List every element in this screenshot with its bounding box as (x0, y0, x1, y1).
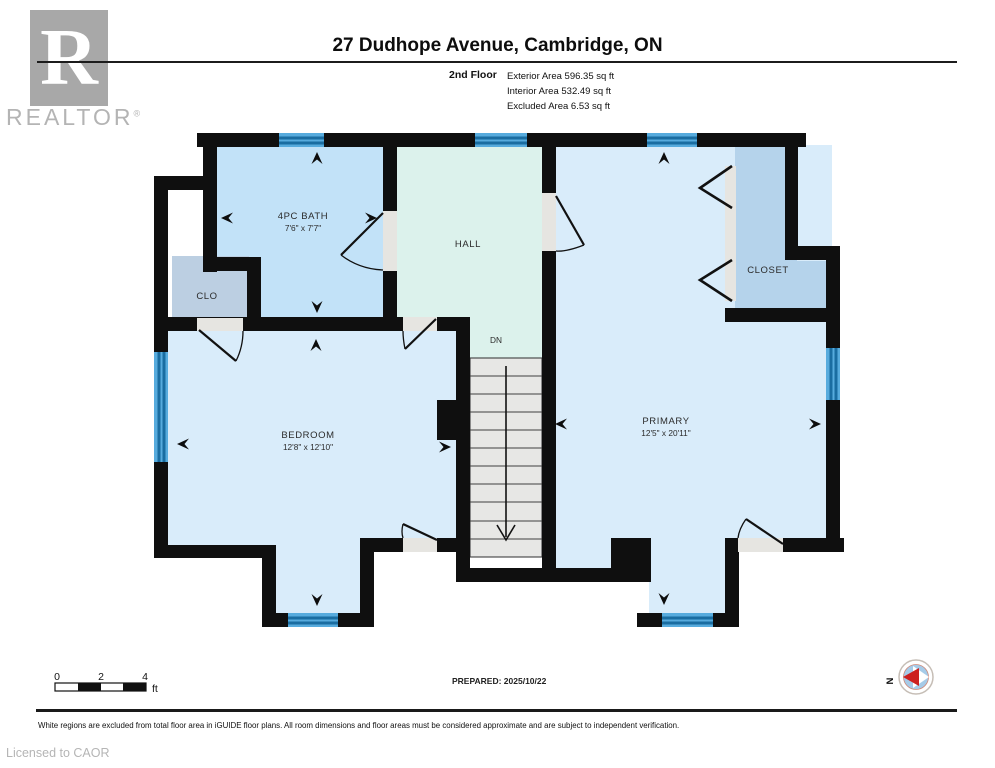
clo-door-opening (197, 318, 243, 331)
stairs-dn-label: DN (490, 335, 502, 345)
scale-tick-4: 4 (142, 671, 148, 683)
primary-label: PRIMARY (642, 416, 689, 427)
scale-bar-segment (123, 683, 146, 691)
closet-bifold-opening (725, 166, 736, 301)
scale-tick-0: 0 (54, 671, 60, 683)
hall-label: HALL (455, 239, 481, 250)
bath-window (279, 133, 324, 147)
primary-top-window (647, 133, 697, 147)
primary-right-window (826, 348, 840, 400)
primary-floor-left-strip (553, 545, 613, 572)
primary-dims: 12'5" x 20'11" (641, 428, 691, 438)
scale-tick-2: 2 (98, 671, 104, 683)
compass: N (885, 660, 933, 694)
primary-bay-window (662, 613, 713, 627)
hall-primary-door-opening (542, 193, 556, 251)
bedroom-bay-window (288, 613, 338, 627)
bedroom-dims: 12'8" x 12'10" (283, 442, 333, 452)
hall-floor (395, 145, 544, 331)
scale-bar: 0 2 4 ft (54, 671, 158, 695)
scale-bar-segment (78, 683, 101, 691)
bath-label: 4PC BATH (278, 211, 329, 222)
hall-window (475, 133, 527, 147)
bedroom-label: BEDROOM (281, 430, 334, 441)
staircase (470, 358, 542, 557)
bath-door-opening (383, 211, 397, 271)
license-text: Licensed to CAOR (6, 746, 110, 760)
hall-floor-lower (468, 331, 544, 358)
floor-plan-page: R REALTOR® 27 Dudhope Avenue, Cambridge,… (0, 0, 995, 768)
disclaimer-text: White regions are excluded from total fl… (38, 721, 968, 730)
closet-label: CLOSET (747, 265, 789, 276)
bedroom-bay-floor (274, 545, 362, 615)
floor-plan-svg: 4PC BATH 7'6" x 7'7" HALL CLO CLOSET BED… (0, 0, 995, 768)
bath-floor (215, 145, 385, 258)
footer-divider (36, 709, 957, 712)
bath-dims: 7'6" x 7'7" (285, 223, 321, 233)
scale-unit-label: ft (152, 683, 158, 695)
bedroom-left-window (154, 352, 168, 462)
bedroom-floor (166, 331, 466, 551)
compass-n-label: N (885, 677, 896, 684)
bedroom-lower-door-opening (403, 538, 437, 552)
prepared-date: PREPARED: 2025/10/22 (452, 676, 546, 686)
clo-label: CLO (196, 291, 217, 302)
primary-bay-floor (649, 538, 727, 615)
